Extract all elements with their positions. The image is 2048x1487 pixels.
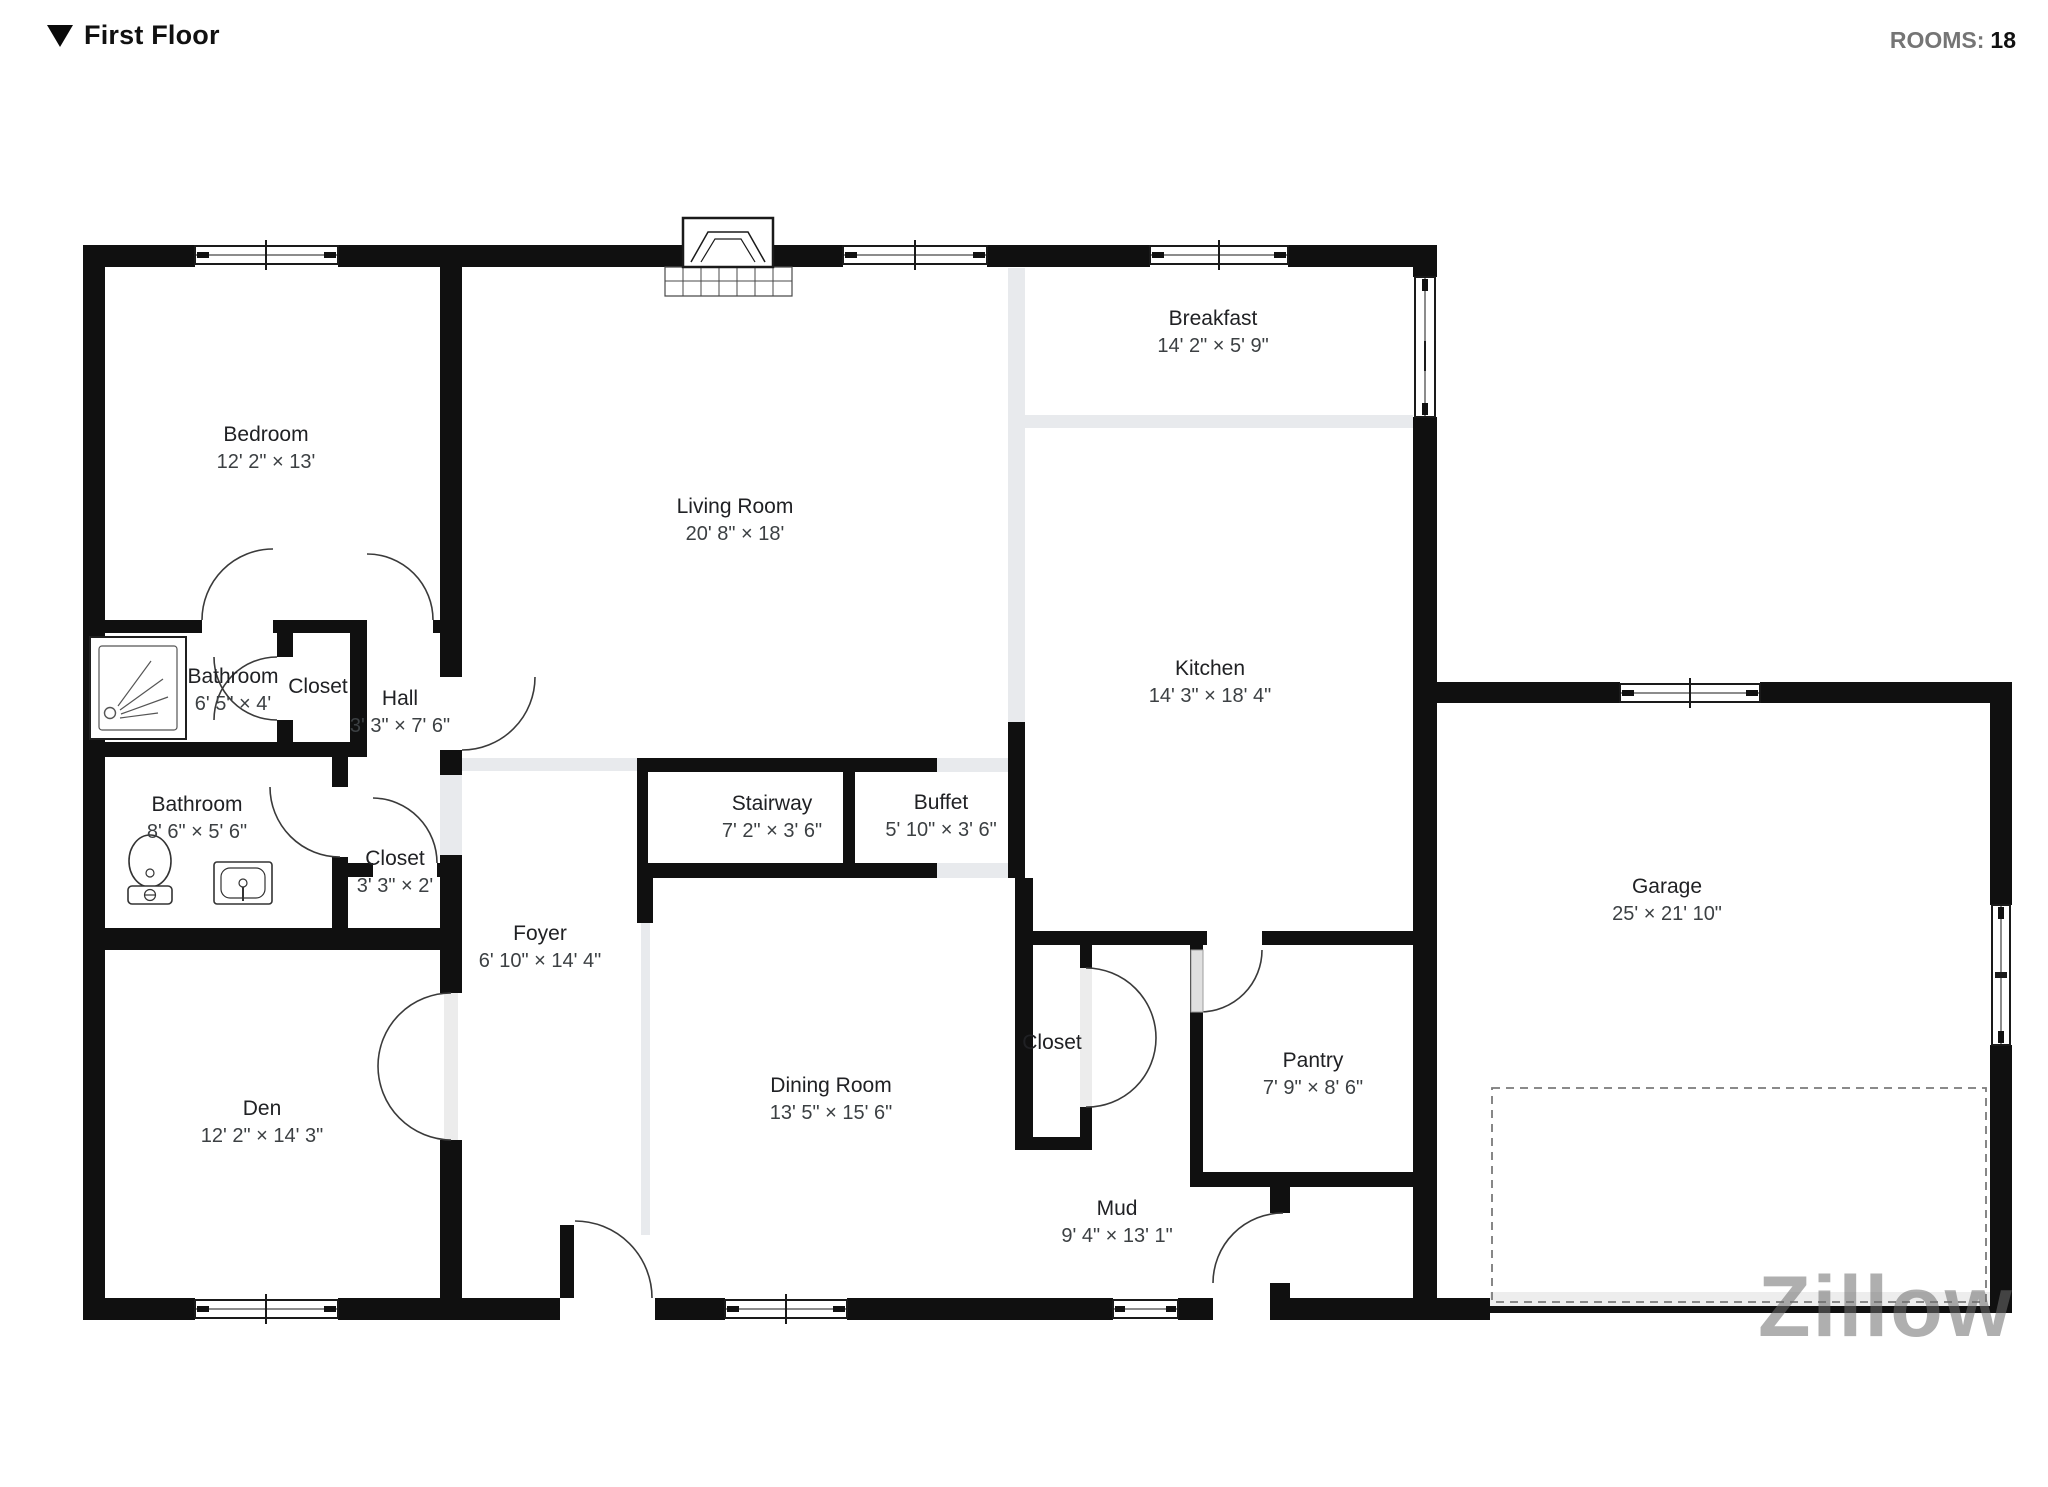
door-arc <box>1086 968 1156 1038</box>
door-arc <box>1086 1038 1156 1107</box>
window-icon <box>1150 240 1288 270</box>
window-icon <box>195 1294 338 1324</box>
door-arc <box>367 554 433 620</box>
door-arc <box>575 1221 652 1298</box>
door-leaf <box>1191 950 1203 1012</box>
door-arc <box>462 677 535 750</box>
window-icon <box>725 1294 847 1324</box>
shower-icon <box>90 637 186 739</box>
walls-layer <box>83 245 2012 1320</box>
door-arc <box>214 657 277 720</box>
window-icon <box>1113 1300 1178 1318</box>
floor-plan-drawing: Zillow <box>0 0 2048 1487</box>
door-arc <box>202 549 273 620</box>
window-icon <box>1620 678 1760 708</box>
open-dividers <box>440 268 1990 1306</box>
door-arc <box>270 787 340 857</box>
door-arc <box>378 1066 451 1140</box>
windows-layer <box>195 240 2010 1324</box>
toilet-icon <box>128 835 172 904</box>
watermark: Zillow <box>1758 1259 2014 1355</box>
fireplace-icon <box>665 218 792 296</box>
door-arc <box>214 657 277 720</box>
door-arc <box>1213 1213 1283 1283</box>
door-arc <box>1200 950 1262 1012</box>
window-icon <box>195 240 338 270</box>
window-icon <box>843 240 987 270</box>
window-icon <box>1992 905 2010 1045</box>
door-arc <box>378 993 451 1066</box>
window-icon <box>1415 277 1435 417</box>
sink-icon <box>214 862 272 904</box>
floor-plan-page: First Floor ROOMS:18 <box>0 0 2048 1487</box>
door-arc <box>373 798 437 863</box>
